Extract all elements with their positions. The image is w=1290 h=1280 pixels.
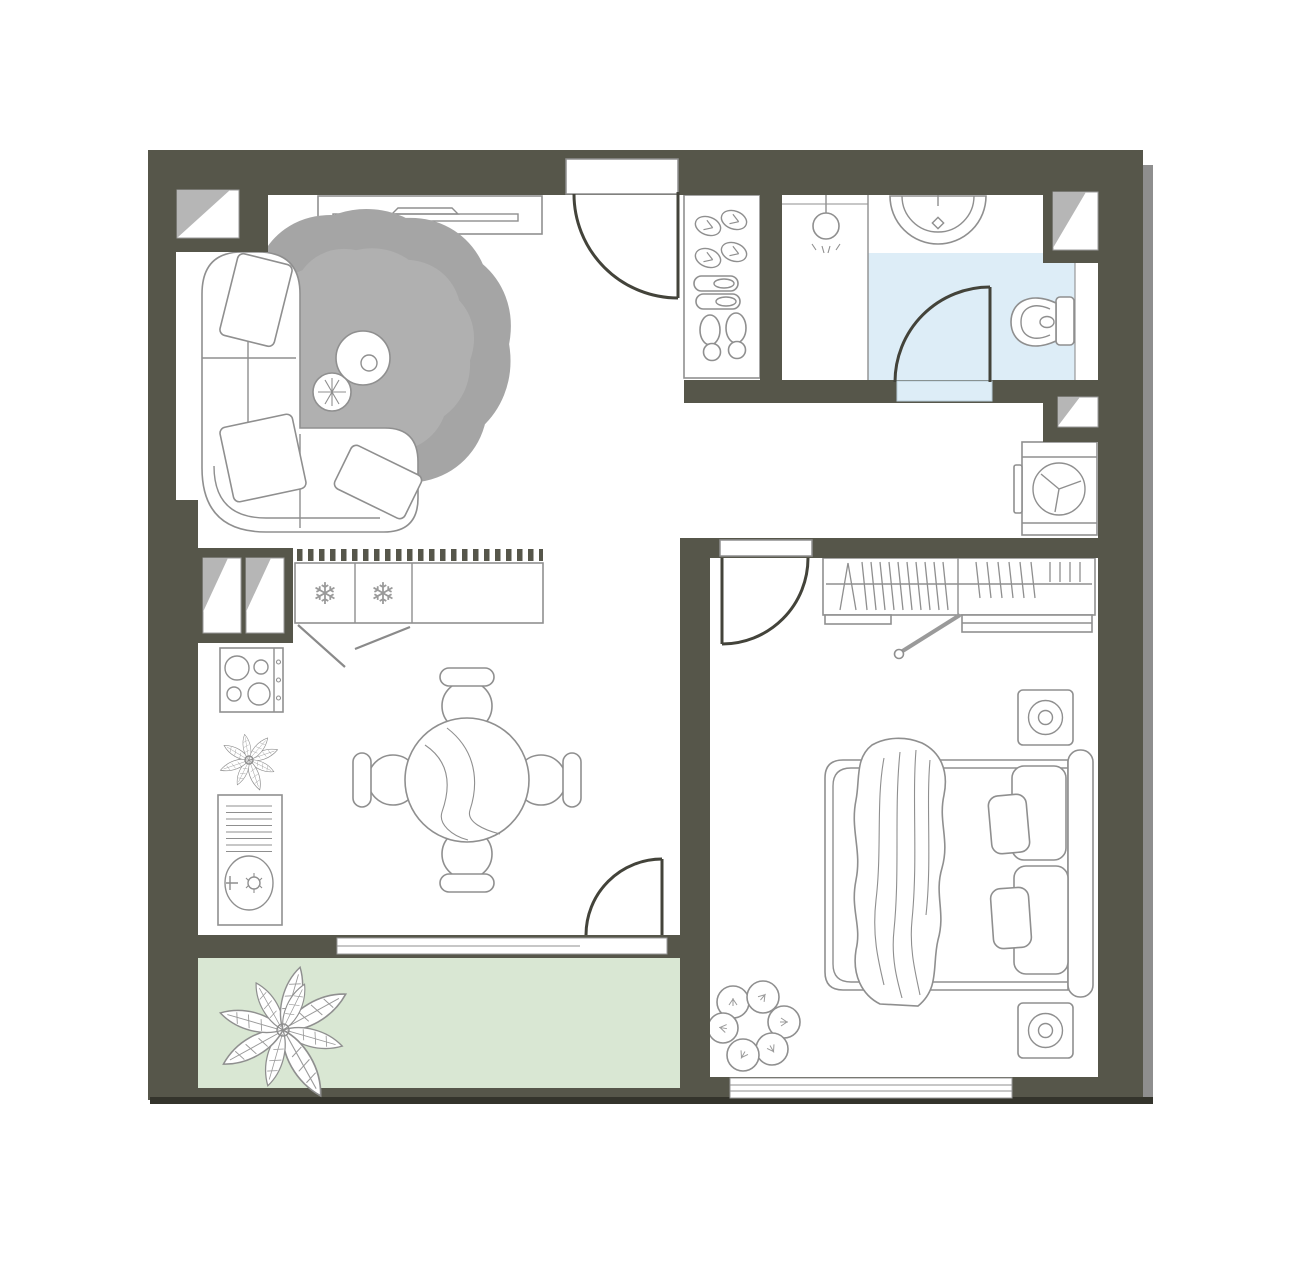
nightstand-bottom xyxy=(1018,1003,1073,1058)
entry-door-slab xyxy=(566,159,678,194)
headboard xyxy=(1068,750,1093,997)
wall-right xyxy=(1098,150,1143,1100)
window-utility-right xyxy=(1058,397,1098,427)
wall-entry-bathroom xyxy=(760,195,782,403)
fridge-icon: ❄ xyxy=(370,577,395,612)
kitchen-sink-unit xyxy=(218,795,282,925)
nightstand-top xyxy=(1018,690,1073,745)
freezer-icon: ❄ xyxy=(312,577,337,612)
window-bathroom-right xyxy=(1053,192,1098,250)
pillow xyxy=(988,793,1031,854)
washing-machine xyxy=(1014,442,1097,535)
dining-table xyxy=(405,718,529,842)
toilet-icon xyxy=(1011,297,1074,346)
bathroom-door-threshold xyxy=(897,381,992,401)
wall-left xyxy=(148,150,176,1100)
floor-plan-svg: ❄ ❄ xyxy=(0,0,1290,1280)
pillow xyxy=(219,413,307,503)
wall-under-shoe-rack xyxy=(684,380,782,403)
stove xyxy=(220,648,283,712)
shoe-rack xyxy=(684,195,760,378)
blanket xyxy=(854,738,945,1006)
window-bedroom-bottom xyxy=(730,1078,1012,1098)
wall-under-w1 xyxy=(1043,250,1098,263)
bedroom-door-slab xyxy=(720,540,812,556)
outer-wall-highlight xyxy=(1143,165,1153,1100)
bed xyxy=(825,738,1093,1006)
wall-w1-strip xyxy=(1043,192,1053,250)
pillow xyxy=(990,887,1032,950)
backsplash-ticks xyxy=(296,549,543,561)
window-balcony-band xyxy=(337,938,667,954)
window-living-top xyxy=(177,190,239,238)
side-table xyxy=(313,373,351,411)
wall-middle-vertical xyxy=(680,538,710,1090)
floor-plan-page: ❄ ❄ xyxy=(0,0,1290,1280)
